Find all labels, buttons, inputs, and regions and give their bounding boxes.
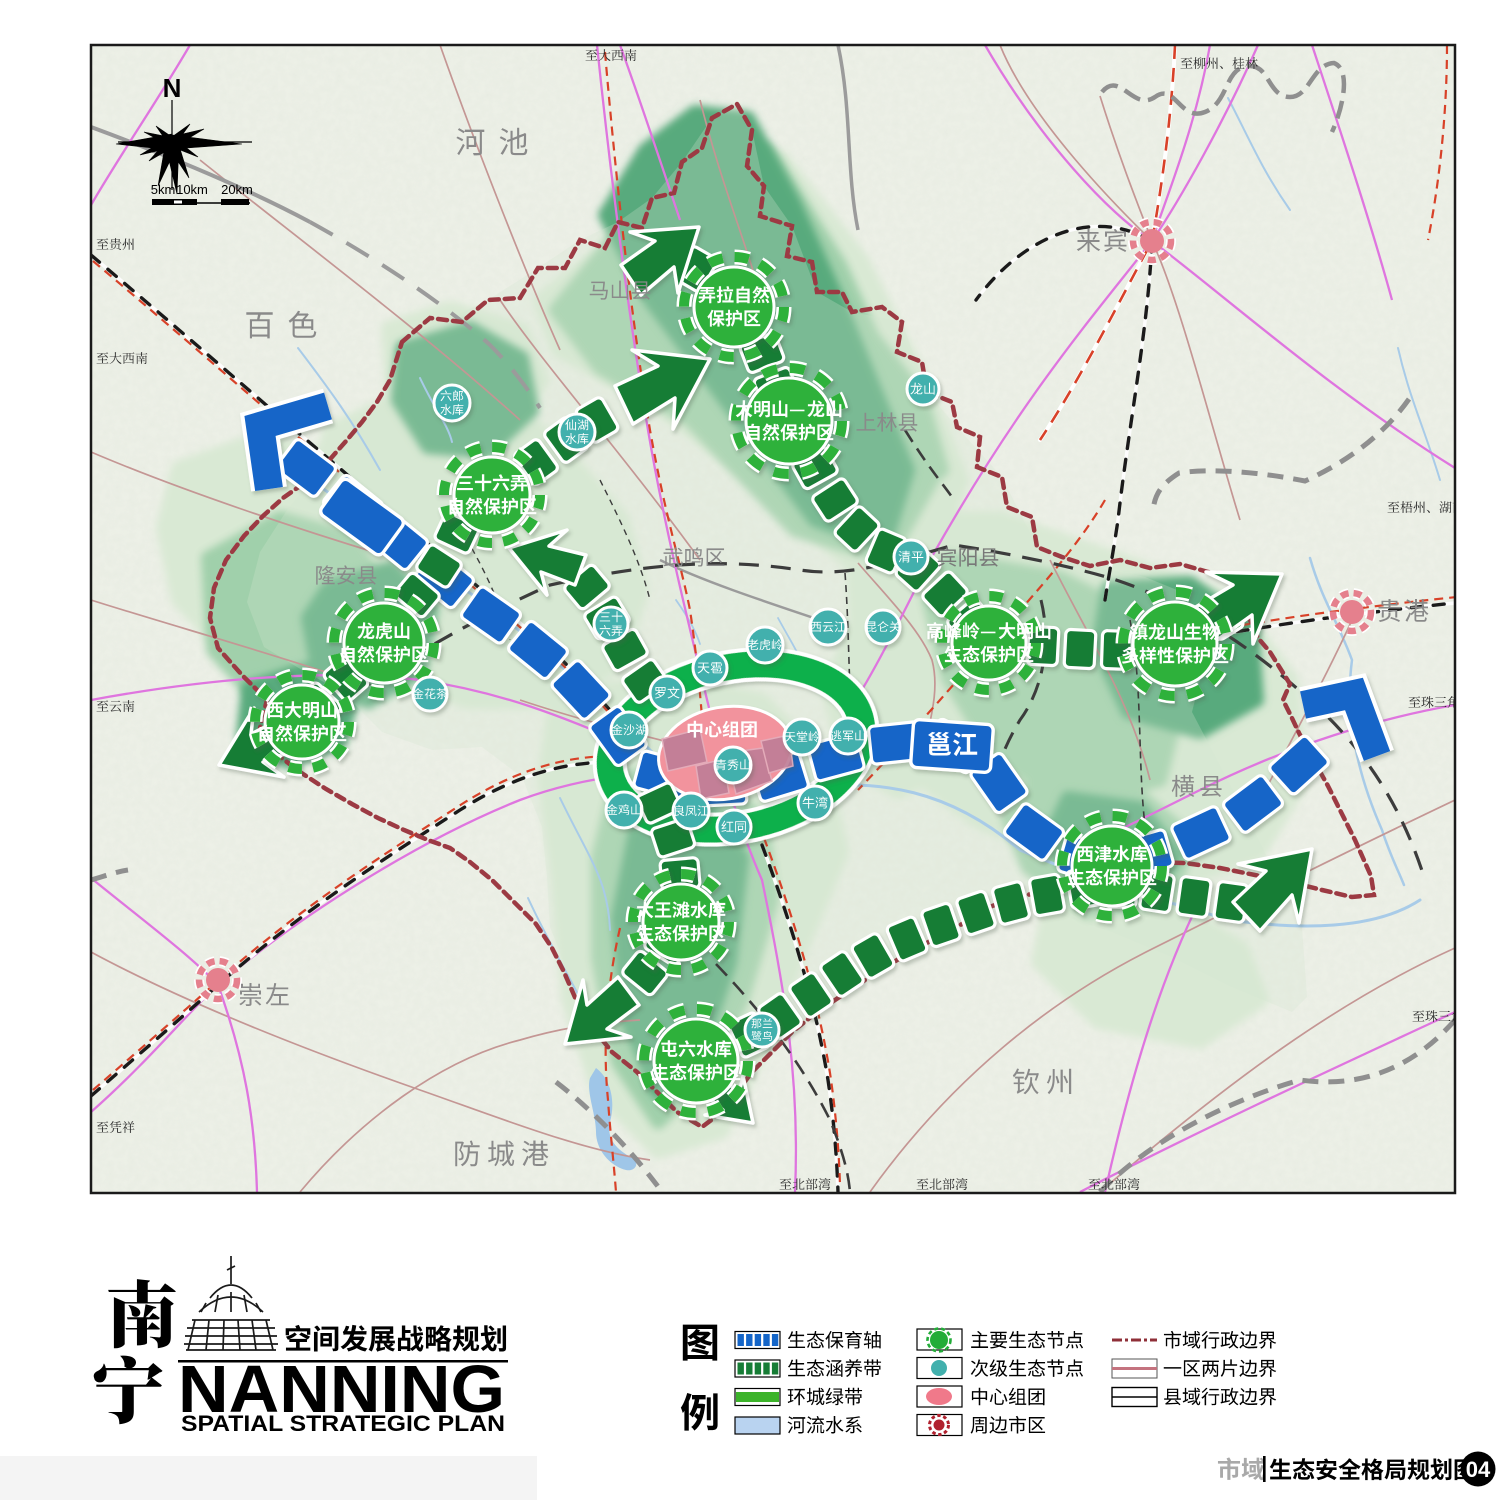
svg-text:SPATIAL STRATEGIC PLAN: SPATIAL STRATEGIC PLAN — [181, 1411, 505, 1436]
svg-text:04: 04 — [1466, 1457, 1491, 1482]
svg-text:N: N — [163, 73, 182, 103]
svg-text:5km: 5km — [151, 182, 176, 197]
svg-text:10km: 10km — [176, 182, 208, 197]
svg-text:20km: 20km — [221, 182, 253, 197]
